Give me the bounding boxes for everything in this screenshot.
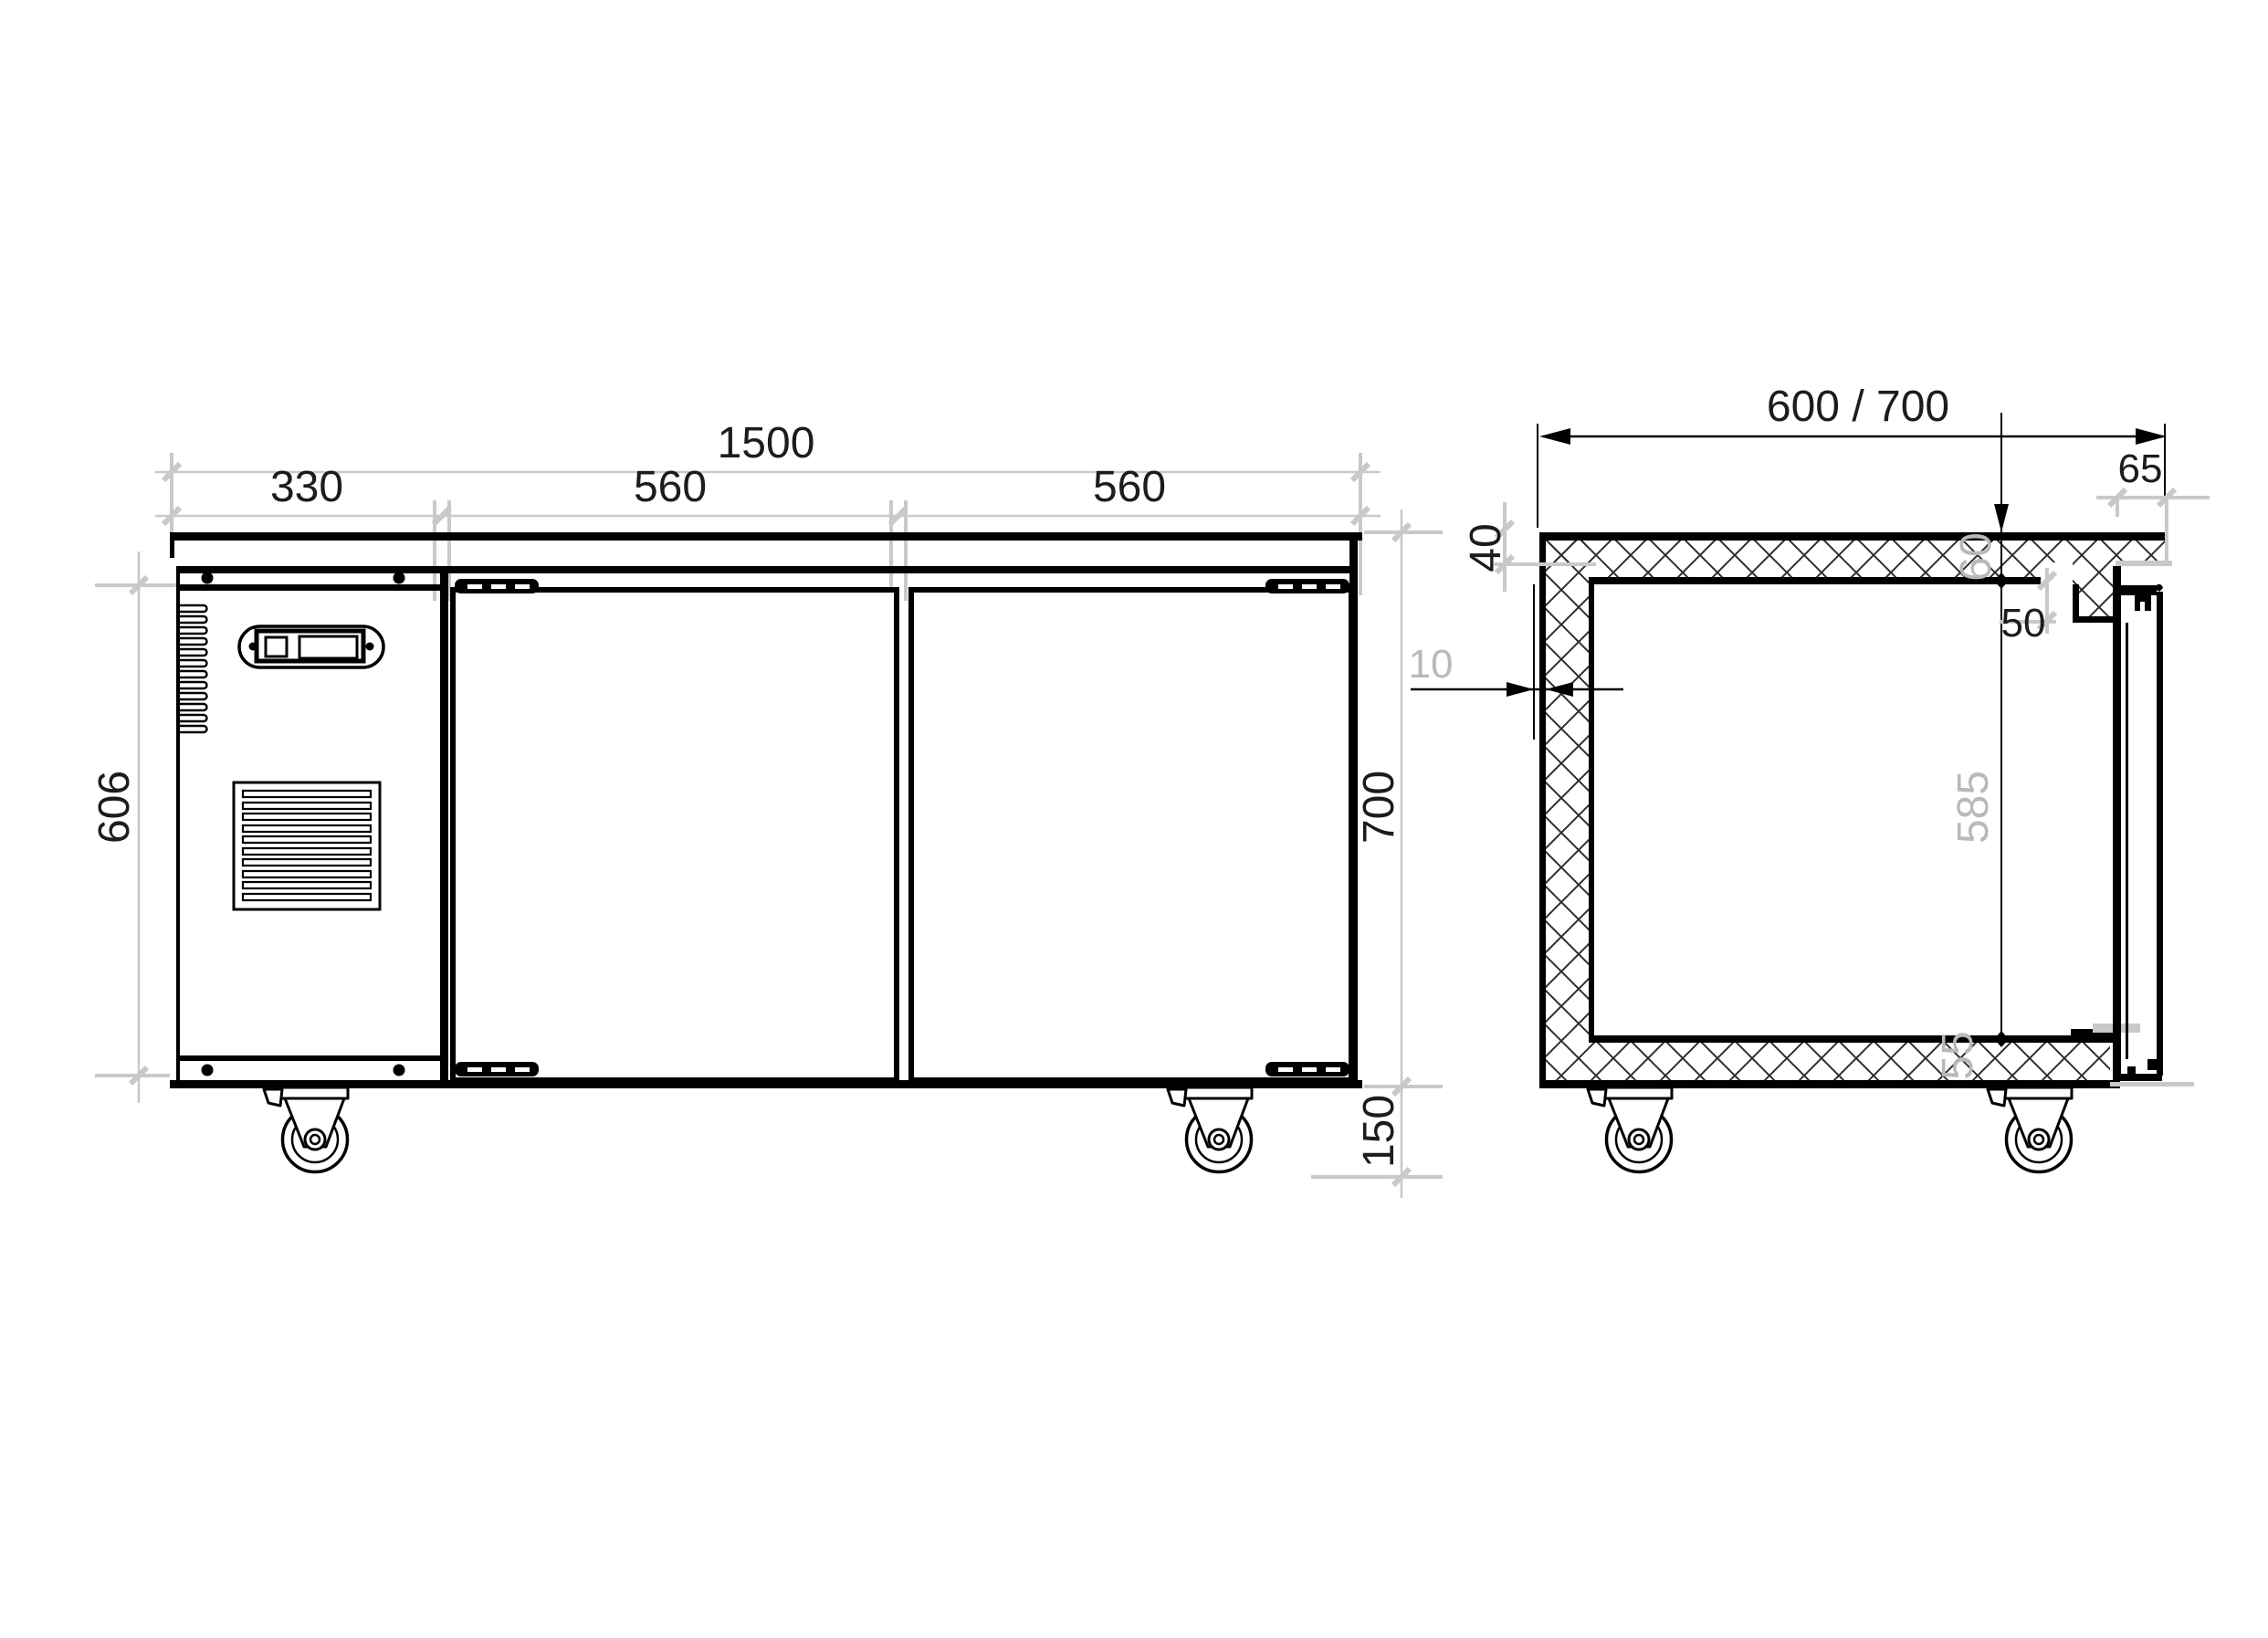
countertop-bottom-edge — [176, 566, 1356, 573]
dim-wall-gap-label: 10 — [1409, 642, 1454, 687]
hinge-top-left — [455, 579, 539, 593]
door-right — [911, 590, 1351, 1080]
compressor-divider — [440, 573, 448, 1080]
dim-bottom-thickness-label: 55 — [1934, 1031, 1982, 1079]
drawing-canvas: 1500 330 560 560 606 — [0, 0, 2268, 1638]
technical-drawing: 1500 330 560 560 606 — [0, 0, 2268, 1638]
hinge-top-right — [1265, 579, 1349, 593]
dim-body-height-label: 606 — [90, 771, 139, 844]
front-view: 1500 330 560 560 606 — [90, 419, 1443, 1198]
door-hinge-top-side — [2118, 584, 2163, 611]
body-left-edge — [176, 573, 180, 1080]
display-screen — [299, 636, 357, 658]
compressor-section — [180, 572, 440, 1076]
caster-front-left — [264, 1087, 348, 1172]
side-louvers — [180, 605, 207, 732]
dim-interior-stack: 60 585 55 — [1934, 413, 2009, 1080]
dim-frame-width-label: 50 — [2001, 601, 2046, 646]
caster-front-right — [1168, 1087, 1252, 1172]
dim-depth-label: 600 / 700 — [1767, 383, 1949, 431]
door-left — [453, 590, 897, 1080]
dim-total-width-label: 1500 — [718, 419, 815, 467]
side-view: 600 / 700 65 40 10 — [1409, 383, 2210, 1172]
door-side-outer — [2157, 592, 2163, 1076]
control-panel — [239, 626, 383, 667]
door-hinge-bottom-side — [2116, 1059, 2162, 1081]
dim-section-door2-label: 560 — [1093, 463, 1166, 511]
frame-step — [2073, 616, 2116, 623]
dim-section-compressor-label: 330 — [270, 463, 343, 511]
display-button — [266, 637, 287, 656]
dim-body-height: 606 — [90, 551, 179, 1103]
cabinet-front — [170, 532, 1362, 1088]
door-side-inner — [2126, 623, 2128, 1059]
countertop-top-edge — [170, 532, 1362, 541]
screw-icon — [366, 643, 374, 651]
dim-top-thickness-label: 60 — [1952, 532, 2000, 581]
dim-interior-height-label: 585 — [1949, 771, 1998, 844]
dim-top-edge-label: 40 — [1462, 523, 1510, 572]
hinge-bottom-left — [455, 1062, 539, 1076]
caster-side-left — [1588, 1087, 1672, 1172]
dim-depth: 600 / 700 — [1538, 383, 2167, 528]
back-wall-outer — [1539, 532, 1546, 1088]
dim-door-overhang-label: 65 — [2118, 446, 2163, 491]
vent-grille — [234, 782, 380, 909]
dim-caster-height-label: 150 — [1355, 1095, 1403, 1168]
hinge-bottom-right — [1265, 1062, 1349, 1076]
dim-door-overhang: 65 — [2096, 446, 2210, 506]
dim-section-door1-label: 560 — [634, 463, 707, 511]
insulation-hatch — [1546, 541, 2165, 1080]
back-wall-inner — [1589, 584, 1594, 1035]
door-jamb — [2113, 566, 2121, 1080]
caster-side-right — [1988, 1087, 2072, 1172]
worktop-top-line — [1539, 532, 2167, 541]
front-extension-lines — [172, 453, 1360, 601]
ground-line — [2110, 1082, 2194, 1087]
dim-total-height-label: 700 — [1355, 771, 1403, 844]
